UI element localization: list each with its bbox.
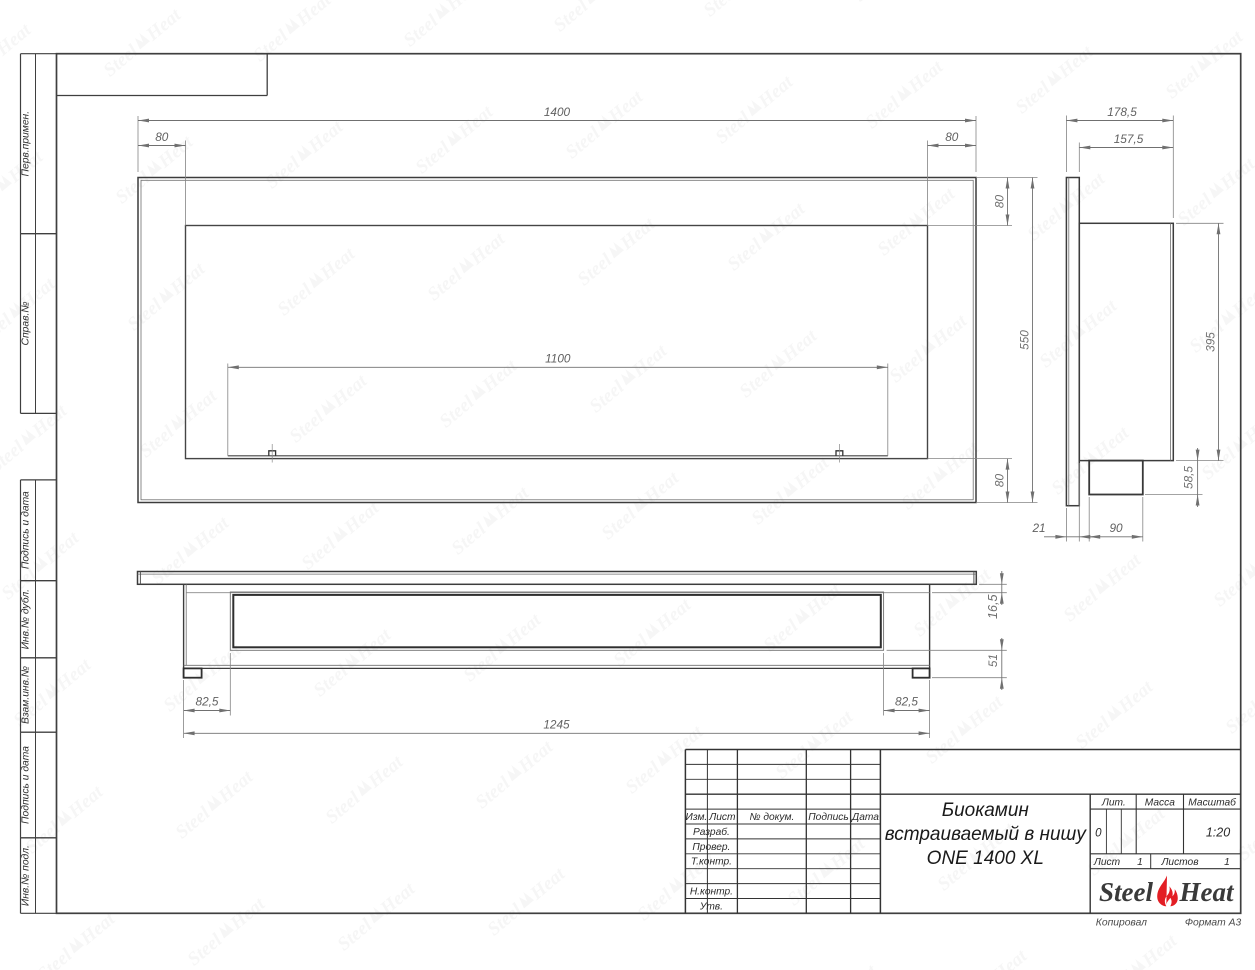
- svg-text:51: 51: [986, 654, 1000, 667]
- svg-text:Перв.примен.: Перв.примен.: [20, 111, 31, 177]
- svg-text:Steel: Steel: [1099, 877, 1153, 907]
- svg-text:82,5: 82,5: [196, 695, 219, 709]
- svg-text:Провер.: Провер.: [692, 842, 730, 853]
- svg-text:Т.контр.: Т.контр.: [691, 857, 732, 868]
- svg-text:1245: 1245: [543, 718, 570, 732]
- svg-text:Подпись и дата: Подпись и дата: [20, 491, 31, 569]
- svg-text:80: 80: [155, 130, 169, 144]
- svg-text:Подпись и дата: Подпись и дата: [20, 746, 31, 824]
- svg-text:Формат А3: Формат А3: [1185, 918, 1242, 929]
- svg-text:1: 1: [1137, 857, 1143, 868]
- svg-text:Копировал: Копировал: [1096, 918, 1147, 929]
- svg-text:Утв.: Утв.: [699, 901, 723, 912]
- svg-text:Дата: Дата: [851, 812, 879, 823]
- svg-text:0: 0: [1095, 828, 1102, 840]
- svg-text:Heat: Heat: [1179, 877, 1235, 907]
- svg-text:Листов: Листов: [1160, 857, 1199, 868]
- svg-text:№ докум.: № докум.: [749, 812, 794, 823]
- svg-text:82,5: 82,5: [895, 695, 918, 709]
- svg-text:Н.контр.: Н.контр.: [690, 887, 733, 898]
- svg-text:1: 1: [1224, 857, 1230, 868]
- svg-text:178,5: 178,5: [1107, 105, 1137, 119]
- svg-text:157,5: 157,5: [1114, 132, 1144, 146]
- svg-text:Инв.№ подл.: Инв.№ подл.: [20, 845, 31, 906]
- svg-text:1400: 1400: [544, 105, 571, 119]
- svg-text:550: 550: [1018, 330, 1032, 350]
- svg-text:Подпись: Подпись: [808, 812, 848, 823]
- svg-text:58,5: 58,5: [1182, 466, 1196, 489]
- svg-text:Изм.: Изм.: [686, 812, 708, 823]
- svg-text:80: 80: [993, 474, 1007, 488]
- svg-text:Лист: Лист: [1093, 857, 1121, 868]
- svg-text:Масштаб: Масштаб: [1188, 797, 1237, 809]
- svg-text:Инв.№ дубл.: Инв.№ дубл.: [19, 589, 31, 649]
- svg-text:1100: 1100: [545, 352, 571, 366]
- svg-text:1:20: 1:20: [1206, 826, 1230, 840]
- svg-text:Лит.: Лит.: [1101, 798, 1126, 809]
- svg-text:Биокамин: Биокамин: [942, 800, 1030, 821]
- svg-text:Масса: Масса: [1145, 798, 1175, 809]
- svg-text:16,5: 16,5: [986, 593, 1000, 619]
- svg-text:Разраб.: Разраб.: [693, 826, 730, 838]
- svg-text:встраиваемый в нишу: встраиваемый в нишу: [885, 824, 1088, 845]
- svg-text:Справ.№: Справ.№: [20, 302, 31, 346]
- svg-text:80: 80: [945, 130, 959, 144]
- svg-text:395: 395: [1204, 332, 1218, 352]
- svg-text:90: 90: [1109, 521, 1123, 535]
- svg-text:80: 80: [993, 195, 1007, 209]
- svg-text:21: 21: [1031, 521, 1045, 535]
- svg-text:Лист: Лист: [708, 812, 736, 823]
- svg-text:ONE 1400 XL: ONE 1400 XL: [927, 848, 1044, 869]
- svg-text:Взам.инв.№: Взам.инв.№: [20, 666, 31, 724]
